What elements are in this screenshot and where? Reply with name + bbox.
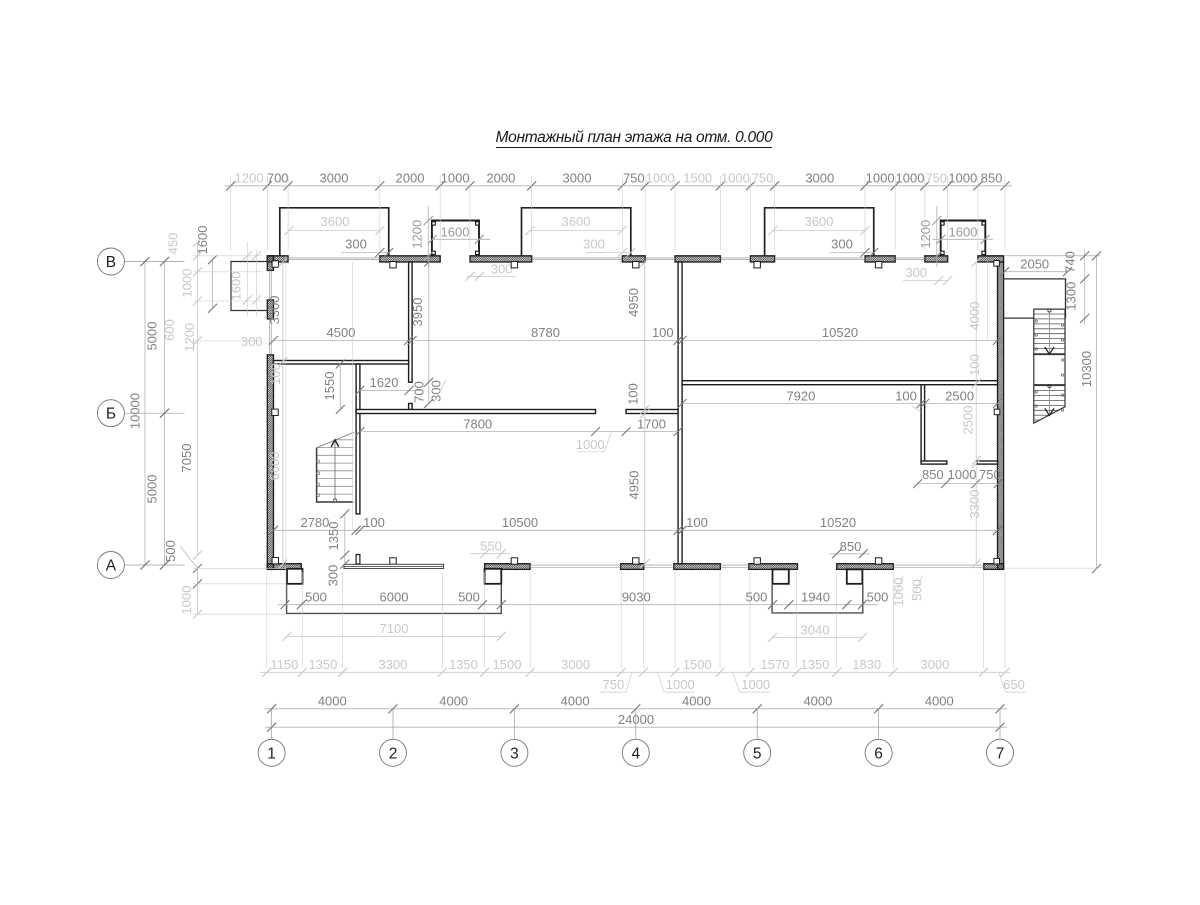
svg-text:850: 850: [840, 539, 862, 554]
svg-text:300: 300: [326, 565, 341, 587]
svg-text:850: 850: [922, 467, 944, 482]
svg-text:7800: 7800: [463, 416, 492, 431]
svg-text:1200: 1200: [182, 323, 197, 352]
svg-text:750: 750: [603, 677, 625, 692]
svg-text:3950: 3950: [410, 298, 425, 327]
svg-text:3300: 3300: [967, 490, 982, 519]
svg-text:1830: 1830: [852, 657, 881, 672]
svg-text:100: 100: [895, 388, 917, 403]
svg-text:Монтажный план этажа на отм. 0: Монтажный план этажа на отм. 0.000: [496, 129, 774, 146]
svg-text:2500: 2500: [945, 388, 974, 403]
svg-text:3: 3: [510, 745, 519, 762]
svg-text:1350: 1350: [801, 657, 830, 672]
svg-text:1000: 1000: [179, 586, 194, 615]
svg-text:7100: 7100: [380, 621, 409, 636]
svg-text:1200: 1200: [918, 220, 933, 249]
svg-text:1500: 1500: [493, 657, 522, 672]
svg-text:500: 500: [163, 540, 178, 562]
svg-text:1000: 1000: [441, 171, 470, 186]
svg-text:3000: 3000: [921, 657, 950, 672]
svg-text:6600: 6600: [267, 452, 282, 481]
svg-text:850: 850: [981, 171, 1003, 186]
svg-text:100: 100: [626, 383, 641, 405]
svg-text:1200: 1200: [235, 171, 264, 186]
svg-text:8780: 8780: [531, 325, 560, 340]
svg-text:3040: 3040: [801, 622, 830, 637]
svg-text:1000: 1000: [576, 437, 605, 452]
svg-text:1350: 1350: [326, 522, 341, 551]
svg-text:1000: 1000: [866, 171, 895, 186]
svg-text:3300: 3300: [378, 657, 407, 672]
svg-text:3300: 3300: [267, 296, 282, 325]
svg-text:6000: 6000: [380, 590, 409, 605]
svg-text:1000: 1000: [896, 171, 925, 186]
svg-text:10500: 10500: [502, 515, 538, 530]
svg-text:100: 100: [686, 515, 708, 530]
svg-text:750: 750: [752, 171, 774, 186]
svg-text:750: 750: [979, 467, 1001, 482]
svg-text:3000: 3000: [320, 171, 349, 186]
svg-text:1620: 1620: [370, 375, 399, 390]
svg-text:4: 4: [631, 745, 640, 762]
svg-text:3000: 3000: [805, 171, 834, 186]
svg-text:700: 700: [412, 381, 427, 403]
svg-text:1500: 1500: [683, 171, 712, 186]
svg-text:300: 300: [241, 334, 263, 349]
svg-text:5: 5: [753, 745, 762, 762]
svg-text:2: 2: [389, 745, 398, 762]
svg-text:100: 100: [967, 354, 982, 376]
svg-text:10520: 10520: [822, 325, 858, 340]
svg-text:300: 300: [345, 236, 367, 251]
svg-text:500: 500: [305, 590, 327, 605]
svg-text:1000: 1000: [741, 677, 770, 692]
svg-text:1600: 1600: [229, 272, 244, 301]
svg-text:500: 500: [746, 590, 768, 605]
svg-text:4000: 4000: [803, 694, 832, 709]
svg-text:В: В: [106, 254, 116, 271]
svg-text:4000: 4000: [439, 694, 468, 709]
svg-text:1000: 1000: [891, 578, 906, 607]
svg-text:2780: 2780: [300, 515, 329, 530]
svg-text:4500: 4500: [327, 325, 356, 340]
svg-text:750: 750: [925, 171, 947, 186]
svg-text:7050: 7050: [179, 444, 194, 473]
svg-text:4000: 4000: [925, 694, 954, 709]
svg-text:9030: 9030: [622, 590, 651, 605]
svg-text:4000: 4000: [682, 694, 711, 709]
svg-text:700: 700: [267, 171, 289, 186]
svg-text:1: 1: [267, 745, 276, 762]
svg-text:300: 300: [905, 265, 927, 280]
svg-text:5000: 5000: [145, 475, 160, 504]
svg-text:10000: 10000: [128, 393, 143, 429]
svg-text:1350: 1350: [449, 657, 478, 672]
svg-text:4000: 4000: [967, 302, 982, 331]
svg-text:300: 300: [491, 262, 513, 277]
svg-text:100: 100: [363, 515, 385, 530]
svg-text:1500: 1500: [683, 657, 712, 672]
svg-text:100: 100: [268, 363, 283, 385]
svg-text:2050: 2050: [1020, 257, 1049, 272]
svg-text:1940: 1940: [801, 590, 830, 605]
svg-text:1700: 1700: [637, 416, 666, 431]
svg-text:1000: 1000: [948, 467, 977, 482]
svg-text:300: 300: [831, 236, 853, 251]
svg-text:5000: 5000: [145, 322, 160, 351]
svg-text:450: 450: [166, 233, 181, 255]
svg-text:1000: 1000: [666, 677, 695, 692]
svg-text:3000: 3000: [561, 657, 590, 672]
svg-text:1000: 1000: [948, 171, 977, 186]
svg-text:300: 300: [583, 236, 605, 251]
svg-text:3600: 3600: [562, 214, 591, 229]
svg-text:100: 100: [652, 325, 674, 340]
svg-text:650: 650: [1003, 677, 1025, 692]
svg-text:1000: 1000: [646, 171, 675, 186]
svg-text:500: 500: [458, 590, 480, 605]
svg-text:550: 550: [480, 539, 502, 554]
svg-text:600: 600: [162, 319, 177, 341]
svg-text:1000: 1000: [180, 269, 195, 298]
svg-text:3600: 3600: [805, 214, 834, 229]
svg-text:2000: 2000: [486, 171, 515, 186]
svg-text:500: 500: [867, 590, 889, 605]
svg-text:7: 7: [996, 745, 1005, 762]
svg-text:1600: 1600: [949, 225, 978, 240]
svg-text:1600: 1600: [441, 225, 470, 240]
svg-text:750: 750: [623, 171, 645, 186]
svg-text:4950: 4950: [627, 471, 642, 500]
svg-text:4950: 4950: [626, 288, 641, 317]
svg-text:1570: 1570: [761, 657, 790, 672]
svg-text:4000: 4000: [561, 694, 590, 709]
svg-text:3600: 3600: [321, 214, 350, 229]
svg-text:1000: 1000: [721, 171, 750, 186]
svg-text:2000: 2000: [396, 171, 425, 186]
svg-text:Б: Б: [106, 406, 116, 423]
svg-text:1550: 1550: [322, 372, 337, 401]
svg-text:6: 6: [874, 745, 883, 762]
svg-text:3000: 3000: [563, 171, 592, 186]
svg-text:7920: 7920: [786, 388, 815, 403]
svg-text:2500: 2500: [961, 406, 976, 435]
svg-text:740: 740: [1062, 251, 1077, 273]
svg-text:1300: 1300: [1064, 282, 1079, 311]
svg-text:10520: 10520: [820, 515, 856, 530]
svg-text:1150: 1150: [270, 657, 298, 672]
svg-text:500: 500: [910, 579, 925, 601]
svg-text:1200: 1200: [410, 220, 425, 249]
svg-text:10300: 10300: [1079, 351, 1094, 387]
svg-text:4000: 4000: [318, 694, 347, 709]
svg-text:А: А: [106, 558, 117, 575]
svg-text:1350: 1350: [308, 657, 337, 672]
